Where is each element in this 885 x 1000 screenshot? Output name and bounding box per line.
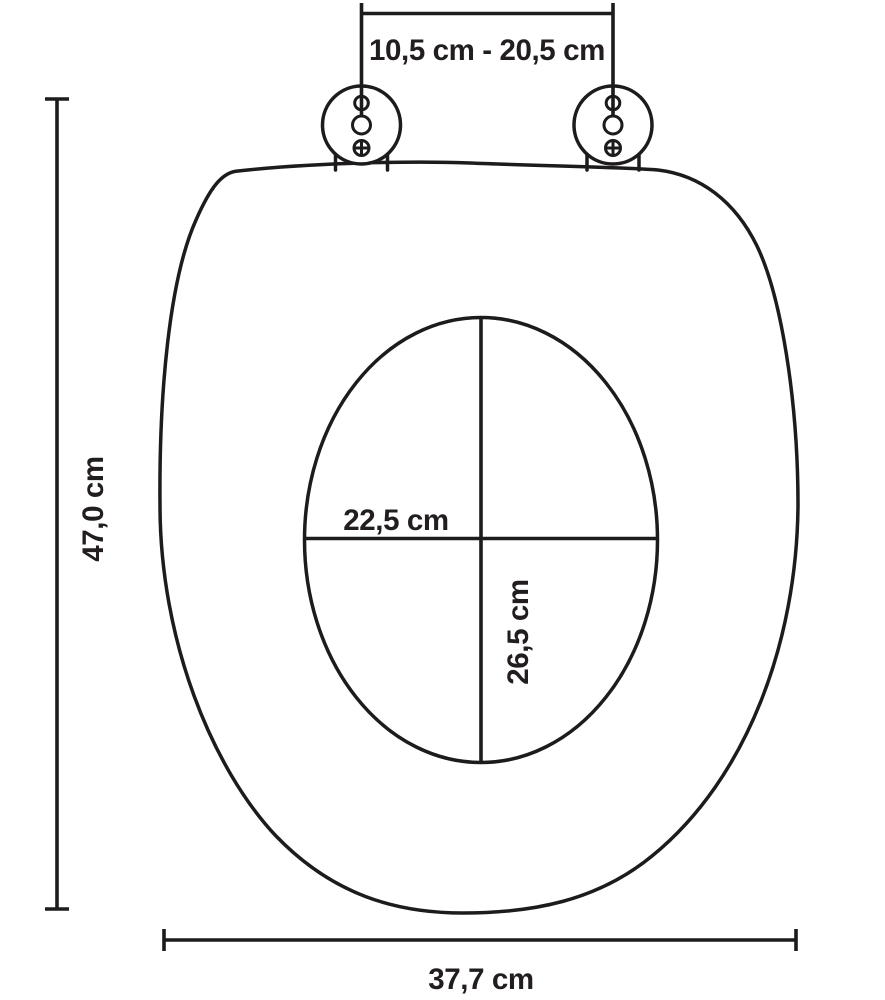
hinge-spacing-label: 10,5 cm - 20,5 cm — [369, 34, 605, 67]
right-hinge-middle-hole — [604, 116, 622, 134]
inner-cutout-width-label: 22,5 cm — [343, 504, 448, 537]
left-hinge-middle-hole — [353, 116, 371, 134]
overall-length-label: 47,0 cm — [77, 456, 110, 561]
overall-length-dimension — [45, 99, 69, 909]
inner-cutout-length-label: 26,5 cm — [502, 579, 535, 684]
diagram-canvas: 10,5 cm - 20,5 cm 47,0 cm 22,5 cm 26,5 c… — [0, 0, 885, 1000]
toilet-seat-dimension-diagram: 10,5 cm - 20,5 cm 47,0 cm 22,5 cm 26,5 c… — [0, 0, 885, 1000]
overall-width-label: 37,7 cm — [428, 963, 533, 996]
overall-width-dimension — [164, 929, 796, 951]
